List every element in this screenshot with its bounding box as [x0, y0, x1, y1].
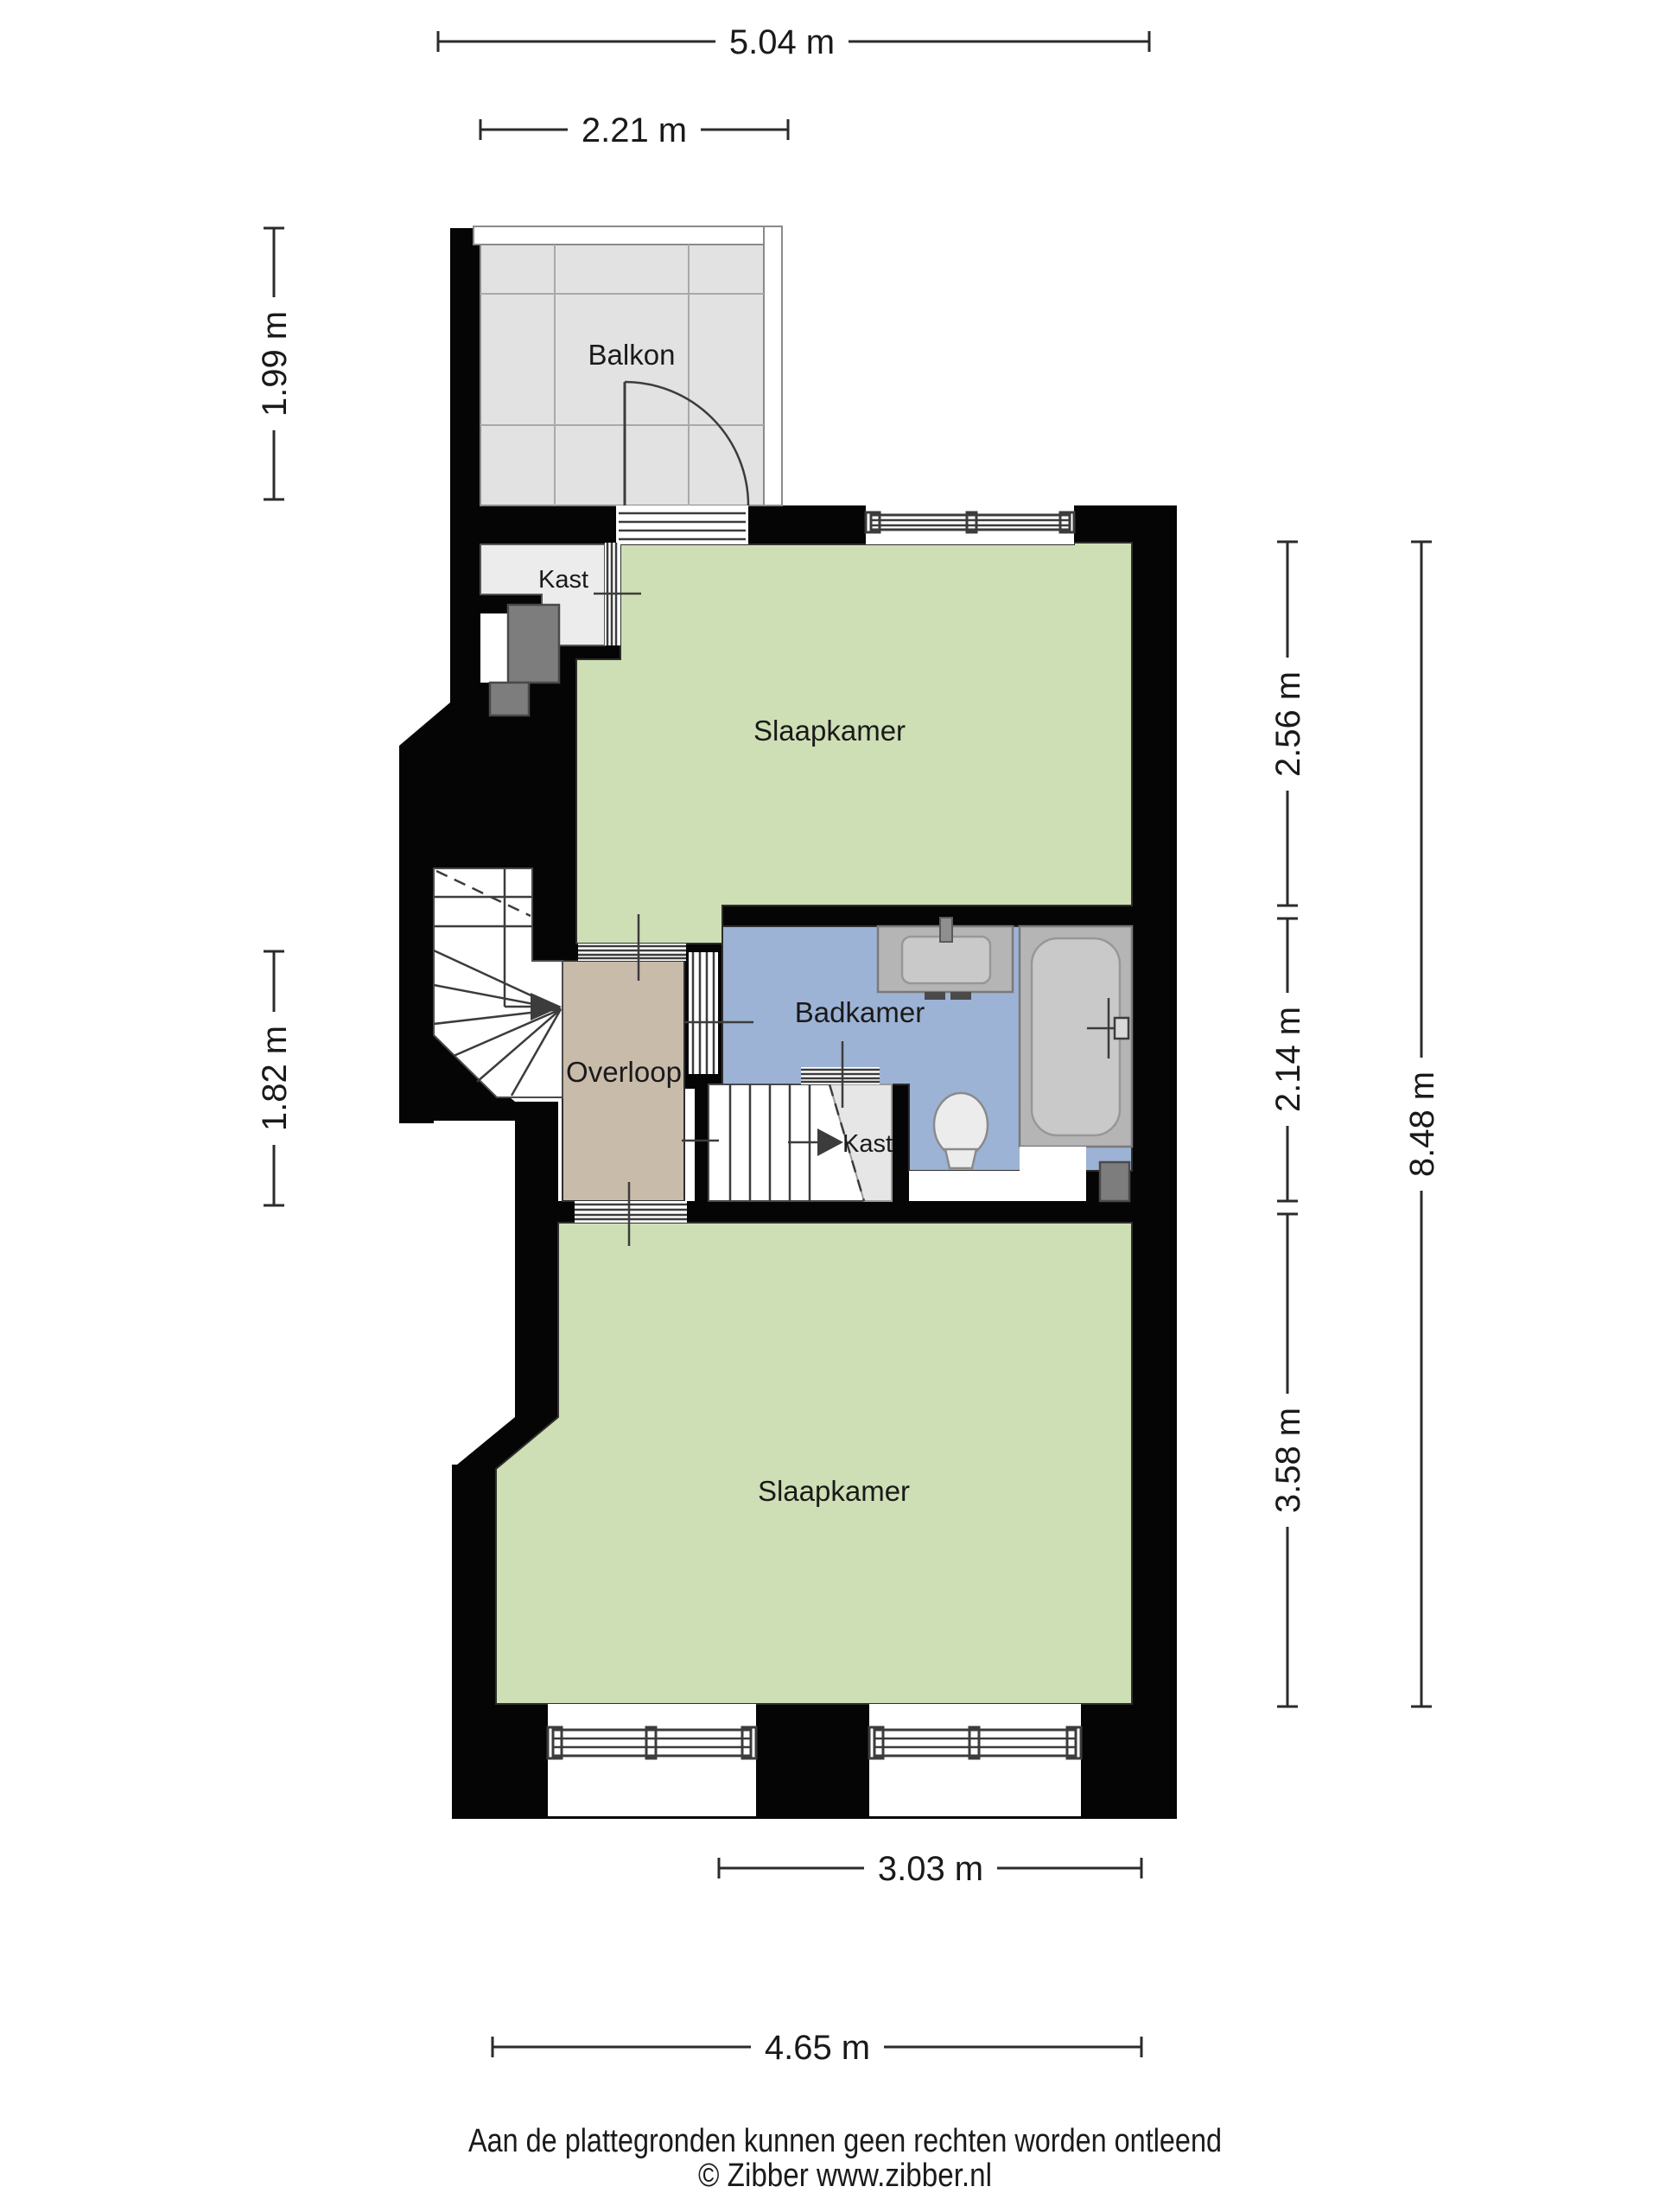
balcony-railing-top: [474, 226, 782, 245]
room-label-bedroom-bottom: Slaapkamer: [758, 1475, 910, 1507]
bathtub-step: [1020, 1147, 1086, 1171]
wall-left-lower: [452, 1465, 496, 1715]
wall-balcony-left: [450, 228, 480, 505]
wall-right: [1132, 505, 1177, 1819]
dimension-label-height-balcony: 1.99 m: [256, 311, 294, 416]
dimension-label-height-bedroom-bottom: 3.58 m: [1269, 1408, 1307, 1513]
wall-bedroom-top-left: [532, 659, 576, 961]
floorplan-canvas: Balkon Kast Slaapkamer Overloop Badkamer…: [0, 0, 1659, 2212]
sink-handle-right: [950, 992, 971, 1000]
floorplan-page: Balkon Kast Slaapkamer Overloop Badkamer…: [0, 0, 1659, 2212]
room-label-landing: Overloop: [566, 1056, 682, 1088]
window-bedroom-top: [866, 505, 1074, 544]
dimension-label-width-bedroom-inner: 3.03 m: [878, 1850, 983, 1888]
wall-stairsdown-right: [892, 1082, 909, 1205]
dimension-label-height-landing: 1.82 m: [256, 1026, 294, 1131]
dimension-label-width-bedroom-outer: 4.65 m: [765, 2029, 870, 2067]
dimension-label-height-bathroom: 2.14 m: [1269, 1007, 1307, 1112]
window-bedroom-bottom-left: [548, 1704, 756, 1816]
dimension-label-height-total: 8.48 m: [1403, 1071, 1441, 1177]
wall-notch-right: [515, 1102, 558, 1424]
room-label-closet-top: Kast: [538, 566, 588, 594]
room-bedroom-bottom: [496, 1223, 1132, 1704]
wall-left-middle: [399, 544, 480, 868]
sink-handle-left: [925, 992, 945, 1000]
sink: [878, 918, 1013, 1000]
room-label-bedroom-top: Slaapkamer: [753, 715, 906, 747]
bathtub: [1020, 926, 1132, 1171]
balcony-railing-right: [764, 226, 782, 505]
window-bedroom-bottom-right: [869, 1704, 1081, 1816]
wall-bathroom-top: [722, 906, 1132, 926]
dimension-label-width-balcony: 2.21 m: [582, 111, 687, 149]
sink-tap-icon: [940, 918, 952, 942]
footer: Aan de plattegronden kunnen geen rechten…: [468, 2123, 1222, 2194]
footer-copyright: © Zibber www.zibber.nl: [698, 2158, 992, 2194]
dimension-label-height-bedroom-top: 2.56 m: [1269, 671, 1307, 777]
room-label-balcony: Balkon: [588, 339, 676, 371]
duct-shaft: [1100, 1162, 1129, 1201]
room-balcony: [480, 245, 764, 505]
room-label-closet-middle: Kast: [842, 1130, 893, 1158]
room-label-bathroom: Badkamer: [795, 996, 925, 1028]
bathroom-niche: [909, 1171, 1086, 1201]
dimension-label-width-total: 5.04 m: [729, 23, 835, 61]
footer-disclaimer: Aan de plattegronden kunnen geen rechten…: [468, 2123, 1222, 2159]
wall-landing-stairs: [695, 1084, 709, 1205]
